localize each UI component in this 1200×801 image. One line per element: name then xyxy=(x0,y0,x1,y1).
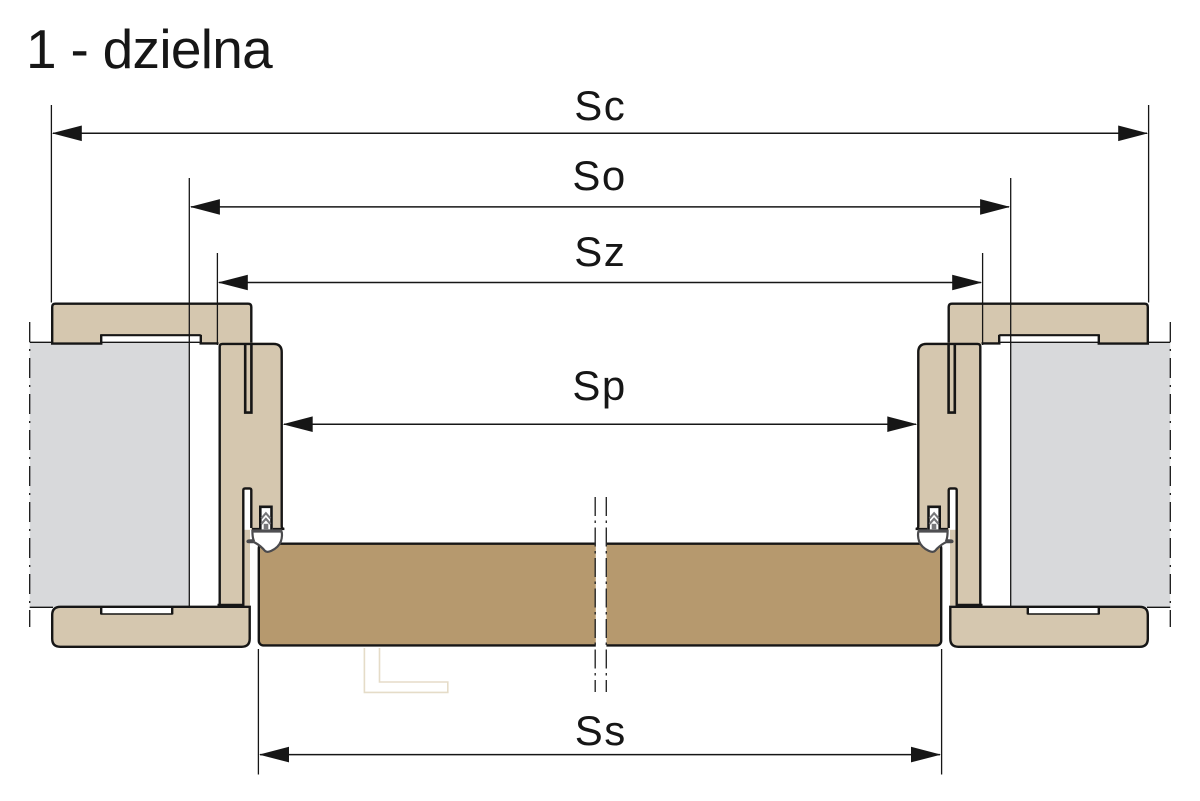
svg-text:Sz: Sz xyxy=(574,228,626,275)
svg-text:Sc: Sc xyxy=(574,82,626,129)
svg-text:So: So xyxy=(572,152,626,199)
svg-text:Sp: Sp xyxy=(572,362,626,409)
svg-text:Ss: Ss xyxy=(575,707,627,754)
svg-text:1 - dzielna: 1 - dzielna xyxy=(26,18,273,80)
